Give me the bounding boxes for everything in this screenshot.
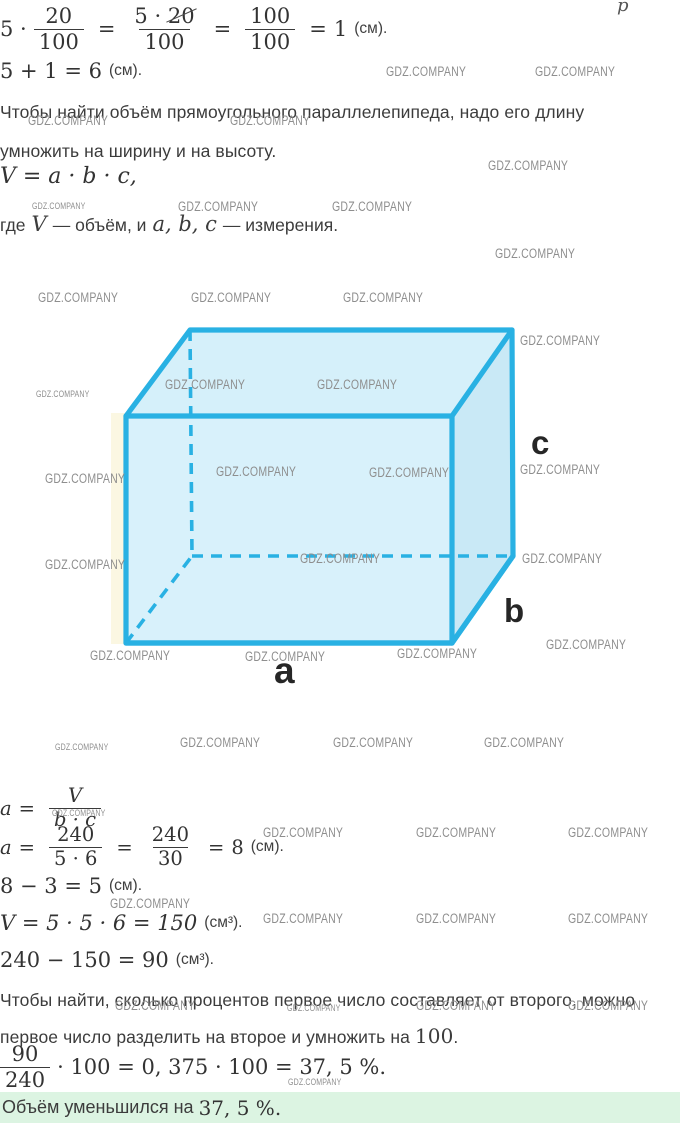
- watermark: GDZ.COMPANY: [110, 896, 190, 911]
- cube-top-face: [128, 330, 512, 416]
- expression: V = 5 · 5 · 6 = 150: [0, 911, 197, 935]
- fraction-numerator: 240: [52, 824, 99, 846]
- lhs: a: [0, 797, 12, 820]
- variables-abc: a, b, c: [152, 212, 216, 236]
- fraction: 240 5 · 6: [49, 824, 102, 870]
- cancelled-number: 20: [168, 4, 195, 28]
- fraction-denominator: 100: [139, 29, 189, 54]
- equals-sign: =: [214, 17, 232, 41]
- math-step-6: V = 5 · 5 · 6 = 150 (см³).: [0, 910, 242, 936]
- watermark: GDZ.COMPANY: [343, 290, 423, 305]
- rule-line: умножить на ширину и на высоту.: [0, 141, 276, 161]
- math-step-5: 8 − 3 = 5 (см).: [0, 874, 142, 898]
- fraction-numerator: 100: [245, 4, 295, 28]
- watermark: GDZ.COMPANY: [38, 290, 118, 305]
- fraction: 100 100: [245, 4, 295, 53]
- equals-sign: =: [19, 836, 35, 859]
- equals-sign: =: [19, 797, 35, 820]
- fraction-denominator: 30: [153, 847, 188, 870]
- lhs: a: [0, 836, 12, 859]
- numerator-prefix: 5 ·: [134, 4, 161, 28]
- watermark: GDZ.COMPANY: [191, 290, 271, 305]
- math-step-7: 240 − 150 = 90 (см³).: [0, 947, 214, 973]
- rule-number: 100: [415, 1024, 453, 1048]
- unit: (см).: [251, 838, 284, 856]
- expression: · 100 = 0, 375 · 100 = 37, 5 %.: [57, 1055, 386, 1079]
- equals-sign: =: [116, 836, 132, 859]
- rule-volume-text: Чтобы найти объём прямоугольного паралле…: [0, 93, 676, 171]
- watermark: GDZ.COMPANY: [333, 735, 413, 750]
- watermark: GDZ.COMPANY: [568, 825, 648, 840]
- answer-value: 37, 5 %.: [199, 1096, 282, 1120]
- fraction-numerator: 20: [40, 4, 77, 28]
- fraction-denominator: 100: [245, 29, 295, 54]
- final-answer: Объём уменьшился на 37, 5 %.: [0, 1092, 680, 1123]
- rule-line: Чтобы найти, сколько процентов первое чи…: [0, 990, 635, 1010]
- result: 1: [334, 17, 347, 41]
- expression: 5 + 1 = 6: [0, 59, 102, 83]
- watermark: GDZ.COMPANY: [332, 199, 412, 214]
- unit: (см³).: [176, 951, 214, 969]
- watermark: GDZ.COMPANY: [535, 64, 615, 79]
- math-step-8: 90 240 · 100 = 0, 375 · 100 = 37, 5 %.: [0, 1044, 386, 1090]
- fraction-numerator: V: [63, 785, 87, 807]
- fraction-denominator: 5 · 6: [49, 847, 102, 870]
- fraction: 5 · 20 100: [129, 4, 199, 53]
- watermark: GDZ.COMPANY: [484, 735, 564, 750]
- legend-text: где: [0, 215, 26, 236]
- formula: V = a · b · c,: [0, 164, 137, 189]
- answer-text: Объём уменьшился на: [2, 1097, 194, 1118]
- cube-drawing: [100, 318, 575, 700]
- rule-dot: .: [453, 1027, 458, 1047]
- legend-text: — объём, и: [53, 215, 147, 236]
- cube-front-face: [126, 416, 452, 643]
- unit: (см).: [109, 877, 142, 895]
- fraction: 20 100: [34, 4, 84, 53]
- watermark: GDZ.COMPANY: [263, 911, 343, 926]
- edge-label-b: b: [504, 592, 524, 630]
- formula-legend: где V — объём, и a, b, c — измерения.: [0, 212, 338, 236]
- expression: 8 − 3 = 5: [0, 874, 102, 898]
- math-formula-volume: V = a · b · c,: [0, 163, 137, 189]
- legend-text: — измерения.: [223, 215, 338, 236]
- watermark: GDZ.COMPANY: [55, 742, 108, 752]
- math-step-2: 5 + 1 = 6 (см).: [0, 59, 142, 83]
- fraction-numerator: 240: [147, 824, 194, 846]
- fraction: 240 30: [147, 824, 194, 870]
- edge-label-a: a: [274, 650, 295, 692]
- rule-line: Чтобы найти объём прямоугольного паралле…: [0, 102, 584, 122]
- watermark: GDZ.COMPANY: [495, 246, 575, 261]
- unit: (см³).: [204, 914, 242, 932]
- watermark: GDZ.COMPANY: [180, 735, 260, 750]
- variable-V: V: [32, 212, 47, 236]
- equals-sign: =: [98, 17, 116, 41]
- equals-sign: =: [208, 836, 224, 859]
- result: 8: [231, 836, 243, 859]
- watermark: GDZ.COMPANY: [32, 201, 85, 211]
- fraction-numerator: 5 · 20: [129, 4, 199, 28]
- watermark: GDZ.COMPANY: [416, 825, 496, 840]
- watermark: GDZ.COMPANY: [416, 911, 496, 926]
- fraction-denominator: 100: [34, 29, 84, 54]
- watermark: GDZ.COMPANY: [36, 389, 89, 399]
- math-step-4: a = 240 5 · 6 = 240 30 = 8 (см).: [0, 823, 284, 871]
- watermark: GDZ.COMPANY: [568, 911, 648, 926]
- fraction-numerator: 90: [7, 1042, 44, 1066]
- math-step-1: 5 · 20 100 = 5 · 20 100 = 100 100 = 1 (с…: [0, 2, 387, 56]
- edge-label-c: c: [531, 424, 549, 462]
- stray-letter: p: [617, 0, 629, 16]
- fraction-denominator: 240: [0, 1067, 50, 1092]
- watermark: GDZ.COMPANY: [386, 64, 466, 79]
- unit: (см).: [109, 62, 142, 80]
- solution-page: 5 · 20 100 = 5 · 20 100 = 100 100 = 1 (с…: [0, 0, 680, 1123]
- fraction: 90 240: [0, 1042, 50, 1091]
- equals-sign: =: [309, 17, 327, 41]
- factor: 5 ·: [0, 17, 27, 41]
- unit: (см).: [354, 20, 387, 38]
- expression: 240 − 150 = 90: [0, 948, 169, 972]
